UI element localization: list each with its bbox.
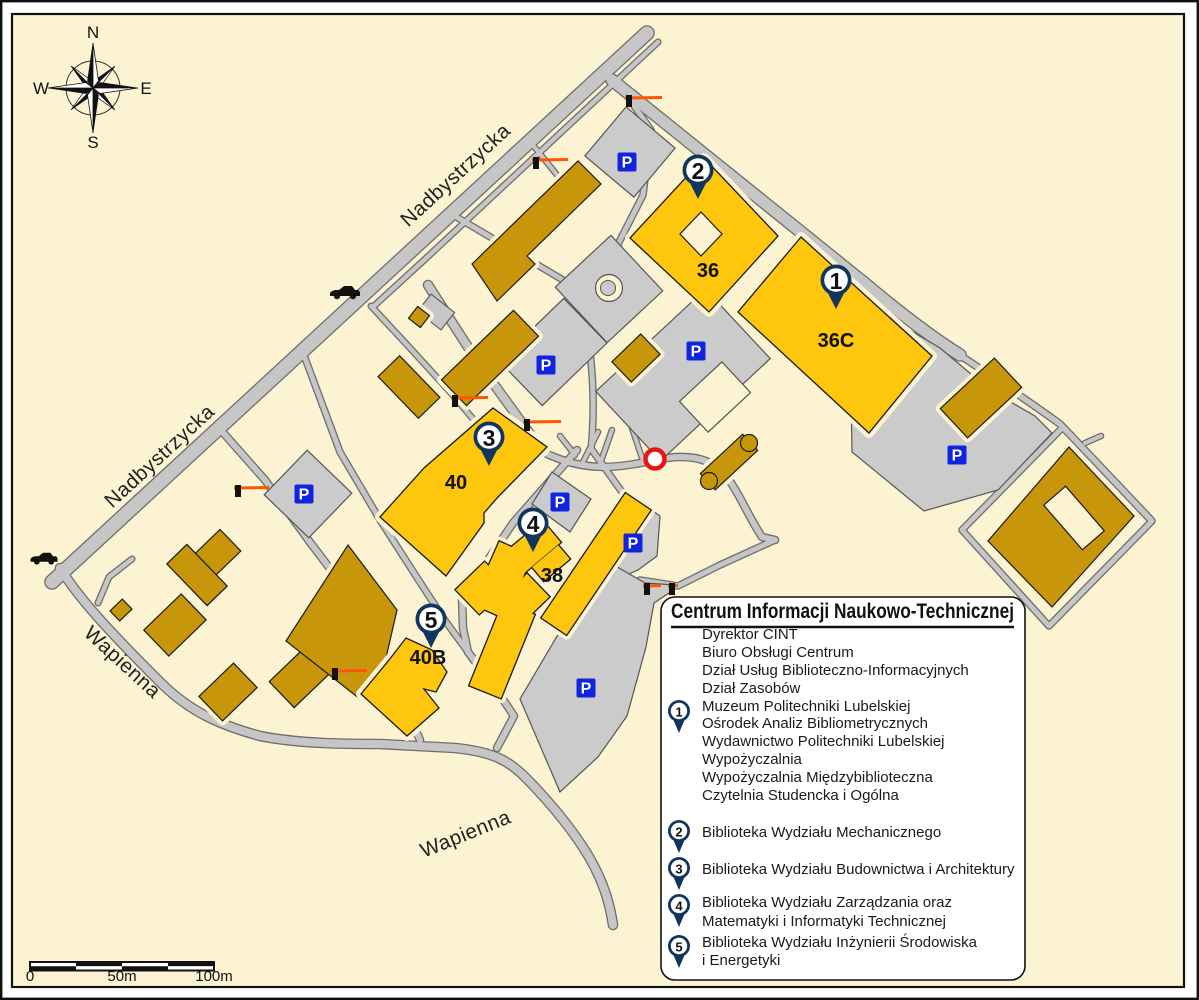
svg-text:Biblioteka Wydziału Budownictw: Biblioteka Wydziału Budownictwa i Archit… (702, 861, 1015, 878)
svg-text:P: P (628, 536, 639, 553)
svg-text:S: S (87, 133, 98, 152)
svg-text:P: P (952, 448, 963, 465)
svg-text:5: 5 (675, 940, 682, 955)
svg-text:0: 0 (26, 968, 34, 985)
svg-text:Muzeum Politechniki Lubelskiej: Muzeum Politechniki Lubelskiej (702, 698, 910, 715)
svg-text:Biblioteka Wydziału Zarządzani: Biblioteka Wydziału Zarządzania oraz (702, 894, 952, 911)
svg-text:Dyrektor CINT: Dyrektor CINT (702, 626, 798, 643)
svg-text:1: 1 (830, 268, 843, 294)
svg-text:Centrum Informacji Naukowo-Tec: Centrum Informacji Naukowo-Technicznej (671, 600, 1014, 623)
svg-text:40: 40 (445, 472, 467, 494)
svg-text:Wypożyczalnia: Wypożyczalnia (702, 751, 803, 768)
svg-text:P: P (581, 681, 592, 698)
svg-text:Biuro Obsługi Centrum: Biuro Obsługi Centrum (702, 644, 854, 661)
svg-text:50m: 50m (107, 968, 136, 985)
svg-text:N: N (87, 23, 99, 42)
svg-text:P: P (622, 155, 633, 172)
svg-text:P: P (555, 495, 566, 512)
svg-text:i Energetyki: i Energetyki (702, 952, 780, 969)
svg-text:Czytelnia Studencka i Ogólna: Czytelnia Studencka i Ogólna (702, 787, 899, 804)
svg-text:4: 4 (527, 511, 540, 537)
svg-text:Wypożyczalnia Międzybibliotecz: Wypożyczalnia Międzybiblioteczna (702, 769, 933, 786)
svg-text:2: 2 (675, 825, 682, 840)
svg-text:5: 5 (425, 607, 438, 633)
svg-text:Dział Usług Biblioteczno-Infor: Dział Usług Biblioteczno-Informacyjnych (702, 662, 969, 679)
svg-text:3: 3 (675, 862, 682, 877)
svg-text:4: 4 (675, 899, 683, 914)
svg-text:100m: 100m (195, 968, 233, 985)
svg-text:W: W (33, 79, 49, 98)
svg-text:P: P (691, 344, 702, 361)
svg-text:40B: 40B (410, 647, 447, 669)
svg-text:36: 36 (697, 260, 719, 282)
svg-text:Wydawnictwo Politechniki Lubel: Wydawnictwo Politechniki Lubelskiej (702, 733, 944, 750)
svg-text:1: 1 (675, 705, 682, 720)
svg-text:Ośrodek Analiz Bibliometryczny: Ośrodek Analiz Bibliometrycznych (702, 715, 928, 732)
svg-text:2: 2 (692, 158, 705, 184)
svg-text:Biblioteka Wydziału Mechaniczn: Biblioteka Wydziału Mechanicznego (702, 824, 941, 841)
svg-text:Biblioteka Wydziału Inżynierii: Biblioteka Wydziału Inżynierii Środowisk… (702, 933, 978, 951)
svg-text:36C: 36C (818, 330, 855, 352)
svg-text:P: P (299, 487, 310, 504)
svg-text:E: E (140, 79, 151, 98)
svg-text:Matematyki i Informatyki Techn: Matematyki i Informatyki Technicznej (702, 913, 946, 930)
svg-text:3: 3 (483, 425, 496, 451)
svg-text:Dział Zasobów: Dział Zasobów (702, 680, 801, 697)
svg-text:P: P (541, 358, 552, 375)
svg-text:38: 38 (541, 565, 563, 587)
